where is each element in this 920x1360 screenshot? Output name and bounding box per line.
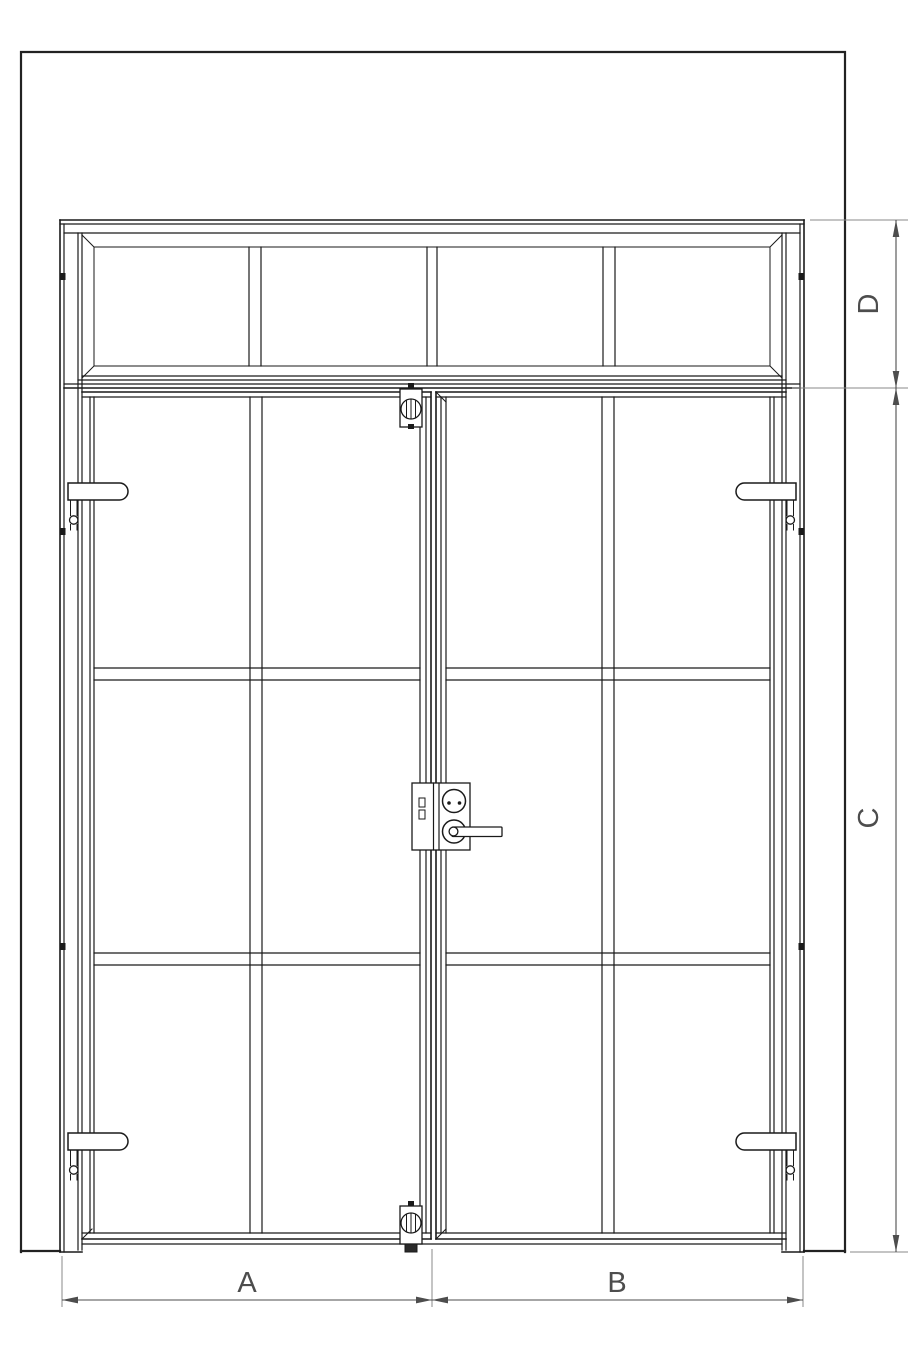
dimension-label-b: B [607, 1267, 626, 1299]
transom-mullion-right [603, 247, 615, 366]
flush-bolt-bottom [400, 1201, 422, 1252]
hinge-top-left [68, 483, 128, 530]
door-frame [60, 220, 804, 1252]
lock-cylinder-icon [443, 790, 466, 813]
transom-sash [82, 235, 782, 378]
transom-bottom-rail [64, 376, 800, 388]
left-door-leaf [82, 392, 431, 1239]
door-elevation-drawing: A B D C [0, 0, 920, 1360]
technical-drawing-canvas: A B D C [0, 0, 920, 1360]
dimension-label-c: C [853, 808, 885, 829]
right-door-leaf [436, 392, 786, 1239]
transom-window [64, 235, 800, 388]
dimension-label-a: A [237, 1267, 257, 1299]
right-door-muntin-vertical [602, 397, 614, 1233]
hinge-bottom-right [736, 1133, 796, 1180]
flush-bolt-top [400, 383, 422, 429]
dimension-b: B [432, 1267, 803, 1303]
door-handle-icon [443, 820, 503, 843]
wall-opening-outline [21, 52, 845, 1252]
dimension-a: A [62, 1267, 432, 1303]
hinge-bottom-left [68, 1133, 128, 1180]
dimension-c: C [853, 388, 899, 1252]
hinge-top-right [736, 483, 796, 530]
dimension-label-d: D [853, 294, 885, 315]
right-door-glazing-bars [446, 668, 770, 965]
left-door-glazing-bars [94, 668, 420, 965]
left-door-muntin-vertical [250, 397, 262, 1233]
transom-mullion-left [249, 247, 261, 366]
dimension-d: D [853, 220, 899, 388]
transom-mullion-center [427, 247, 437, 366]
lock-assembly [412, 783, 502, 850]
